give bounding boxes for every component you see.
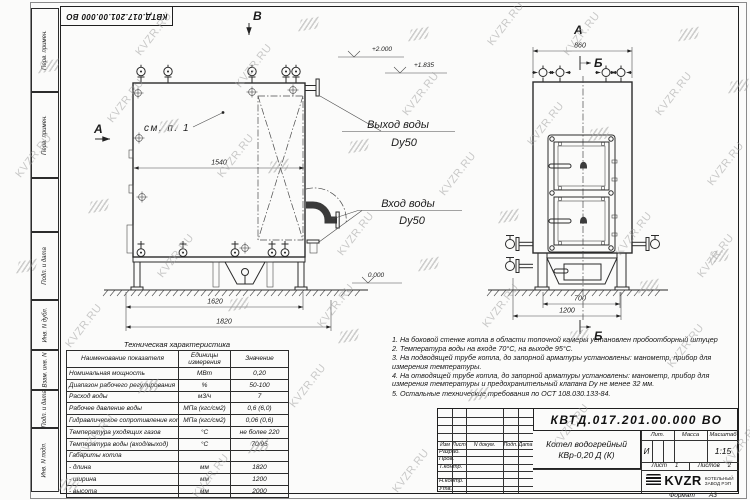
elev-0000: 0.000 bbox=[368, 272, 385, 279]
title-block: КВТД.017.201.00.000 ВО Котел водогрейный… bbox=[437, 408, 738, 492]
drawing-sheet: { "watermark": { "text": "KVZR.RU" }, "f… bbox=[0, 0, 750, 500]
elev-2000: +2.000 bbox=[372, 46, 392, 53]
view-mark-a: А bbox=[93, 122, 103, 136]
spec-cell: МВт bbox=[179, 368, 231, 380]
change-table-header: N докум. bbox=[466, 441, 503, 449]
door-bolts bbox=[550, 137, 613, 250]
spec-table-title: Техническая характеристика bbox=[66, 340, 288, 349]
ash-door bbox=[564, 264, 601, 280]
spec-cell: 1820 bbox=[231, 462, 289, 474]
dim-1620: 1620 bbox=[207, 299, 223, 306]
stamp-header: Лит. bbox=[641, 431, 674, 440]
spec-row: Номинальная мощностьМВт0,20 bbox=[67, 368, 289, 380]
signature-row-label bbox=[439, 471, 467, 478]
section-mark-b-top: Б bbox=[594, 56, 603, 70]
spec-cell: 1200 bbox=[231, 474, 289, 486]
side-view-mark-a: А bbox=[573, 23, 583, 37]
spec-header-value: Значение bbox=[231, 351, 289, 368]
spec-cell: 70/95 bbox=[231, 438, 289, 450]
spec-row: Диапазон рабочего регулирования%50-100 bbox=[67, 379, 289, 391]
change-table-header: Изм bbox=[438, 441, 452, 449]
elev-1835: +1.835 bbox=[414, 62, 434, 69]
note-item: 4. На отводящей трубе котла, до запорной… bbox=[392, 372, 736, 389]
spec-cell: °С bbox=[179, 426, 231, 438]
change-table-header: Подп. bbox=[503, 441, 518, 449]
front-top-valves bbox=[137, 65, 300, 83]
spec-cell: 0,20 bbox=[231, 368, 289, 380]
side-view: А 860 Б bbox=[487, 23, 668, 343]
spec-table: Наименование показателя Единицы измерени… bbox=[66, 350, 289, 498]
spec-cell: Гидравлическое сопротивление котла bbox=[67, 415, 179, 427]
spec-cell: - ширина bbox=[67, 474, 179, 486]
sheet-label: Лист bbox=[652, 463, 667, 469]
scale-value: 1:15 bbox=[707, 440, 739, 462]
stamp-header: Масштаб bbox=[707, 431, 739, 440]
side-top-valves bbox=[532, 66, 632, 83]
boiler-body-front bbox=[133, 83, 305, 257]
spec-cell: м3/ч bbox=[179, 391, 231, 403]
front-bottom-valves bbox=[137, 241, 289, 257]
spec-cell: Температура воды (вход/выход) bbox=[67, 438, 179, 450]
spec-row: - высотамм2000 bbox=[67, 485, 289, 497]
note-item: 3. На подводящей трубе котла, до запорно… bbox=[392, 354, 736, 371]
inlet-elbow-pipe bbox=[306, 205, 337, 220]
lower-door-handle bbox=[549, 219, 571, 223]
spec-table-body: Номинальная мощностьМВт0,20Диапазон рабо… bbox=[67, 368, 289, 498]
product-name-line2: КВр-0,20 Д (К) bbox=[558, 450, 614, 461]
spec-row: Температура уходящих газов°Сне более 220 bbox=[67, 426, 289, 438]
company-cell: KVZR КОТЕЛЬНЫЙ ЗАВОД РЭП bbox=[641, 470, 739, 491]
sheets-label: Листов bbox=[698, 463, 720, 469]
spec-row: Расход водым3/ч7 bbox=[67, 391, 289, 403]
inlet-flange bbox=[336, 212, 339, 228]
kvzr-logo-text: KVZR bbox=[664, 473, 701, 488]
upper-door-latch bbox=[580, 162, 587, 169]
spec-cell: не более 220 bbox=[231, 426, 289, 438]
spec-header-name: Наименование показателя bbox=[67, 351, 179, 368]
spec-cell bbox=[179, 450, 231, 462]
change-table-header: Дата bbox=[518, 441, 533, 449]
spec-cell: Рабочее давление воды bbox=[67, 403, 179, 415]
drain-stub bbox=[310, 243, 317, 253]
sheets-cell: Листов 2 bbox=[690, 462, 739, 470]
spec-cell: Температура уходящих газов bbox=[67, 426, 179, 438]
spec-cell: Расход воды bbox=[67, 391, 179, 403]
spec-cell: Диапазон рабочего регулирования bbox=[67, 379, 179, 391]
dim-1200: 1200 bbox=[559, 308, 575, 315]
spec-cell: 2000 bbox=[231, 485, 289, 497]
spec-cell: мм bbox=[179, 485, 231, 497]
hole-markers bbox=[133, 85, 299, 254]
spec-cell: - длина bbox=[67, 462, 179, 474]
spec-cell: - высота bbox=[67, 485, 179, 497]
sheet-cell: Лист 1 bbox=[641, 462, 690, 470]
signature-row-label: Разраб. bbox=[439, 449, 467, 456]
spec-row: Температура воды (вход/выход)°С70/95 bbox=[67, 438, 289, 450]
spec-header-units: Единицы измерения bbox=[179, 351, 231, 368]
spec-cell: % bbox=[179, 379, 231, 391]
upper-door-handle bbox=[549, 164, 571, 168]
spec-row: - ширинамм1200 bbox=[67, 474, 289, 486]
product-name-line1: Котел водогрейный bbox=[546, 439, 627, 450]
spec-cell: 0,06 (0,6) bbox=[231, 415, 289, 427]
product-name: Котел водогрейный КВр-0,20 Д (К) bbox=[533, 431, 641, 469]
spec-cell bbox=[231, 450, 289, 462]
dim-700: 700 bbox=[574, 296, 586, 303]
spec-cell: 50-100 bbox=[231, 379, 289, 391]
kvzr-coil-icon bbox=[646, 474, 661, 487]
spec-cell: °С bbox=[179, 438, 231, 450]
signature-row-label: Пров. bbox=[439, 456, 467, 463]
inlet-label: Вход воды bbox=[381, 198, 434, 210]
signature-row-label: Т.контр. bbox=[439, 464, 467, 471]
spec-cell: МПа (кгс/см2) bbox=[179, 403, 231, 415]
spec-row: Рабочее давление водыМПа (кгс/см2)0,6 (6… bbox=[67, 403, 289, 415]
literal-value: И bbox=[641, 440, 652, 462]
signature-row-label: Утв. bbox=[439, 486, 467, 493]
spec-cell: мм bbox=[179, 474, 231, 486]
spec-cell: 0,6 (6,0) bbox=[231, 403, 289, 415]
doc-number: КВТД.017.201.00.000 ВО bbox=[533, 409, 739, 431]
ground-hatch bbox=[103, 290, 360, 296]
note-item: 5. Остальные технические требования по О… bbox=[392, 390, 736, 399]
dim-1820: 1820 bbox=[216, 319, 232, 326]
spec-row: - длинамм1820 bbox=[67, 462, 289, 474]
spec-row: Гидравлическое сопротивление котлаМПа (к… bbox=[67, 415, 289, 427]
format-line: Формат А3 bbox=[648, 492, 738, 499]
signature-row-label: Н.контр. bbox=[439, 478, 467, 485]
spec-cell: мм bbox=[179, 462, 231, 474]
spec-cell: МПа (кгс/см2) bbox=[179, 415, 231, 427]
see-item-callout: см. п. 1 bbox=[144, 123, 190, 134]
dim-1540: 1540 bbox=[211, 160, 227, 167]
change-table-header: Лист bbox=[452, 441, 466, 449]
dim-860: 860 bbox=[574, 43, 586, 50]
stamp-header: Масса bbox=[674, 431, 707, 440]
company-name-line2: ЗАВОД РЭП bbox=[705, 481, 734, 486]
format-label: Формат bbox=[669, 492, 695, 499]
sheet-value: 1 bbox=[675, 463, 678, 469]
section-mark-b: В bbox=[253, 9, 262, 23]
outlet-label: Выход воды bbox=[367, 119, 429, 131]
front-view: Выход воды Dy50 Вход воды Dy50 см. п. 1 … bbox=[93, 9, 462, 331]
format-value: А3 bbox=[709, 492, 717, 499]
spec-cell: Габариты котла bbox=[67, 450, 179, 462]
inlet-dn-label: Dy50 bbox=[399, 215, 426, 227]
lower-door-latch bbox=[580, 217, 587, 224]
sheets-value: 2 bbox=[728, 463, 731, 469]
spec-row: Габариты котла bbox=[67, 450, 289, 462]
spec-cell: 7 bbox=[231, 391, 289, 403]
notes-list: 1. На боковой стенке котла в области топ… bbox=[392, 336, 736, 399]
outlet-flange bbox=[316, 79, 319, 96]
outlet-dn-label: Dy50 bbox=[391, 137, 418, 149]
spec-cell: Номинальная мощность bbox=[67, 368, 179, 380]
